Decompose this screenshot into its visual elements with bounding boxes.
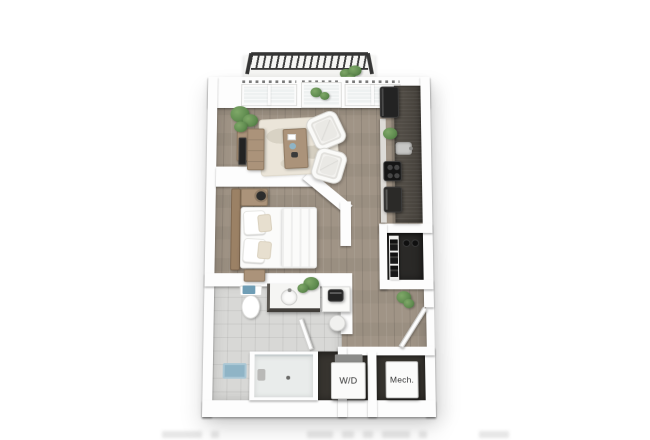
bath-mat xyxy=(223,363,247,379)
washer-dryer-label: W/D xyxy=(339,376,357,386)
bedroom-dresser xyxy=(244,269,266,281)
coffee-table-book xyxy=(287,134,296,140)
left-window-mullion xyxy=(268,85,271,105)
watermark-fragment xyxy=(307,431,333,438)
entry-plant-icon xyxy=(403,299,414,309)
right-window-mullion xyxy=(371,85,374,105)
cooktop xyxy=(383,161,402,181)
door-pane-plant-icon xyxy=(320,92,329,100)
coffee-table-decor-dark xyxy=(291,152,298,157)
watermark-fragment xyxy=(342,431,354,438)
watermark-fragment xyxy=(419,431,427,438)
laptop-screen-line xyxy=(330,292,342,294)
bed-accent-pillow xyxy=(257,214,272,233)
tv-screen xyxy=(238,138,246,165)
wall-bottom xyxy=(202,400,436,417)
watermark-fragment xyxy=(382,431,410,438)
window-shade-dashes xyxy=(242,80,296,83)
tv-console xyxy=(247,129,265,171)
washer-dryer-unit: W/D xyxy=(331,362,366,399)
floor-plan: W/D Mech. xyxy=(202,77,436,417)
watermark-fragment xyxy=(211,431,219,438)
watermark-fragment xyxy=(363,431,373,438)
shower-glass-line xyxy=(255,354,313,356)
closet-wall-top xyxy=(379,224,432,233)
bed-coverlet xyxy=(282,209,316,267)
armchair-cushion xyxy=(314,118,339,143)
kitchen-faucet xyxy=(409,147,413,151)
toilet-towels xyxy=(243,285,256,294)
desk-stool xyxy=(329,315,346,331)
shower-drain xyxy=(286,376,290,380)
floor-plan-image: W/D Mech. xyxy=(0,0,650,440)
nightstand-lamp xyxy=(256,191,266,200)
oven-handle xyxy=(386,189,388,209)
shower-faucet xyxy=(257,369,265,381)
closet-shoe-icon xyxy=(403,239,411,246)
closet-wall-bottom xyxy=(380,280,434,289)
vanity-plant-icon xyxy=(297,284,308,293)
watermark-smudge xyxy=(162,429,514,439)
watermark-fragment xyxy=(162,431,202,438)
bed-accent-pillow xyxy=(257,241,272,260)
living-plant-icon xyxy=(234,121,247,132)
closet-folded-items xyxy=(390,238,398,276)
closet-shoe-icon xyxy=(411,239,419,246)
coffee-table-decor xyxy=(289,143,296,149)
refrigerator-handle xyxy=(382,88,384,116)
kitchen-plant-icon xyxy=(383,128,397,140)
wall-bedroom-right xyxy=(340,201,351,246)
mechanical-unit: Mech. xyxy=(385,361,418,398)
vanity-faucet xyxy=(288,288,292,292)
wall-wd-mech-divider xyxy=(367,352,377,417)
watermark-gap xyxy=(436,431,470,438)
window-shade-dashes xyxy=(346,80,400,83)
mechanical-label: Mech. xyxy=(390,375,414,385)
watermark-gap xyxy=(228,431,298,438)
watermark-fragment xyxy=(479,431,509,438)
armchair-cushion xyxy=(319,155,340,177)
